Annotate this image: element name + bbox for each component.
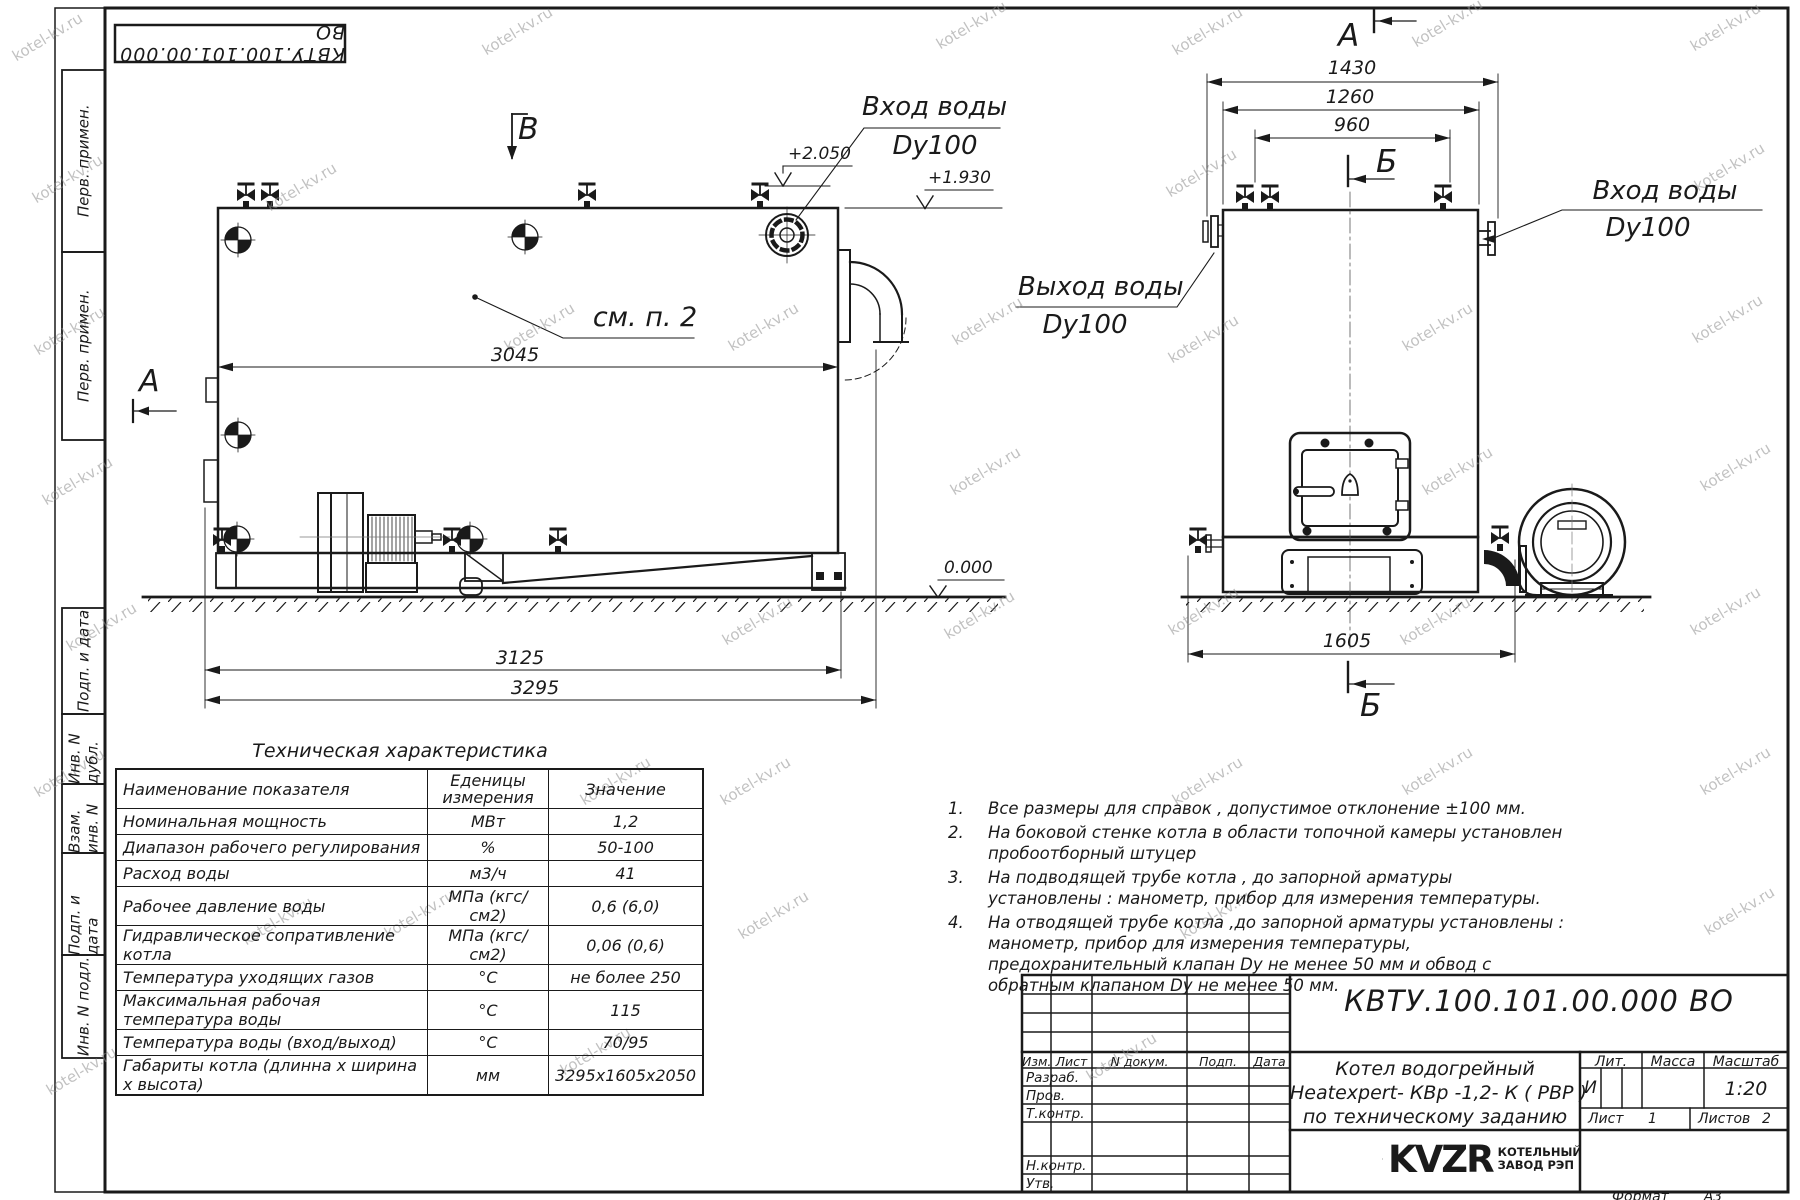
drawing-sheet: kotel-kv.ru kotel-kv.ru kotel-kv.ru kote… [0,0,1800,1200]
cell-name: Диапазон рабочего регулирования [116,835,428,861]
view-label-a-side: А [139,364,160,399]
dim-3295: 3295 [475,677,595,699]
cell-units: % [428,835,549,861]
inlet-callout-dn-front: Dy100 [1588,213,1708,243]
table-row: Диапазон рабочего регулирования%50-100 [116,835,703,861]
see-note-callout: см. п. 2 [580,302,710,333]
section-label-b-bottom: Б [1360,688,1381,724]
inlet-callout-text-front: Вход воды [1565,176,1765,206]
view-label-a-top: А [1338,18,1359,54]
view-label-b: В [518,112,539,147]
note-1: 1. Все размеры для справок , допустимое … [948,798,1568,819]
company-name: КОТЕЛЬНЫЙ ЗАВОД РЭП [1498,1146,1582,1172]
boiler-front-view [1016,10,1762,692]
col-header-units: Еденицы измерения [428,769,549,809]
cell-value: 0,06 (0,6) [549,926,704,965]
sheet-value: 1 [1648,1111,1657,1127]
dim-1430: 1430 [1302,57,1402,79]
format-label: Формат [1612,1189,1669,1200]
sheets-value: 2 [1762,1111,1771,1127]
tech-table-title: Техническая характеристика [115,740,685,762]
row-prov: Пров. [1026,1088,1065,1104]
cell-value: 41 [549,861,704,887]
cell-value: 50-100 [549,835,704,861]
top-stamp-doc-number: КВТУ.100.101.00.000 ВО [115,25,345,62]
lit-label: Лит. [1580,1054,1642,1070]
note-number: 1. [948,798,988,819]
dim-3045: 3045 [455,344,575,366]
col-list: Лист [1051,1054,1092,1069]
table-row: Рабочее давление водыМПа (кгс/см2)0,6 (6… [116,887,703,926]
cell-name: Габариты котла (длинна х ширина х высота… [116,1056,428,1096]
cell-value: 0,6 (6,0) [549,887,704,926]
cell-units: м3/ч [428,861,549,887]
margin-label-podp-data-2: Подп. и дата [62,853,105,955]
table-row: Номинальная мощностьМВт1,2 [116,809,703,835]
cell-units: МВт [428,809,549,835]
tech-table: Наименование показателя Еденицы измерени… [115,768,704,1096]
note-3: 3. На подводящей трубе котла , до запорн… [948,867,1568,909]
notes-list: 1. Все размеры для справок , допустимое … [948,798,1568,999]
cell-units: мм [428,1056,549,1096]
table-row: Гидравлическое сопративление котлаМПа (к… [116,926,703,965]
format-note: Формат А3 [1612,1189,1722,1200]
sheets-label: Листов [1698,1111,1750,1127]
row-nkontr: Н.контр. [1026,1158,1086,1174]
cell-units: °С [428,991,549,1030]
cell-units: МПа (кгс/см2) [428,887,549,926]
dim-3125: 3125 [460,647,580,669]
company-name-line2: ЗАВОД РЭП [1498,1159,1582,1172]
company-logo-block: KVZR КОТЕЛЬНЫЙ ЗАВОД РЭП [1382,1133,1582,1185]
cell-units: МПа (кгс/см2) [428,926,549,965]
product-name-line2: Heatexpert- КВр -1,2- К ( РВР ) [1290,1082,1580,1104]
margin-label-podp-data-1: Подп. и дата [62,608,105,714]
table-row: Габариты котла (длинна х ширина х высота… [116,1056,703,1096]
cell-name: Рабочее давление воды [116,887,428,926]
cell-name: Расход воды [116,861,428,887]
col-header-name: Наименование показателя [116,769,428,809]
scale-label: Масштаб [1704,1054,1788,1070]
table-header-row: Наименование показателя Еденицы измерени… [116,769,703,809]
row-utv: Утв. [1026,1176,1054,1192]
col-ndokum: N докум. [1092,1054,1187,1069]
cell-name: Максимальная рабочая температура воды [116,991,428,1030]
table-row: Максимальная рабочая температура воды°С1… [116,991,703,1030]
row-razrab: Разраб. [1026,1070,1079,1086]
col-podp: Подп. [1187,1054,1249,1069]
elevation-zero: 0.000 [944,558,993,578]
cell-value: 70/95 [549,1030,704,1056]
table-row: Температура уходящих газов°Сне более 250 [116,965,703,991]
margin-label-perv-primen-1: Перв. примен. [62,70,105,252]
row-tkontr: Т.контр. [1026,1106,1085,1122]
mass-label: Масса [1642,1054,1704,1070]
cell-value: 115 [549,991,704,1030]
dim-1605: 1605 [1292,630,1402,652]
cell-name: Температура воды (вход/выход) [116,1030,428,1056]
table-row: Расход водым3/ч41 [116,861,703,887]
cell-units: °С [428,1030,549,1056]
cell-units: °С [428,965,549,991]
doc-number: КВТУ.100.101.00.000 ВО [1290,984,1788,1018]
col-izm: Изм. [1022,1054,1051,1069]
note-2: 2. На боковой стенке котла в области топ… [948,822,1568,864]
company-logo-text: KVZR [1388,1138,1493,1181]
cell-name: Номинальная мощность [116,809,428,835]
lit-value: И [1580,1078,1601,1098]
boiler-side-view [133,114,1005,708]
outlet-elbow [838,250,908,380]
cell-value: не более 250 [549,965,704,991]
note-number: 2. [948,822,988,864]
note-number: 4. [948,912,988,996]
col-header-value: Значение [549,769,704,809]
elevation-mid: +1.930 [928,168,991,188]
outlet-callout-text: Выход воды [1018,272,1180,302]
note-text: На боковой стенке котла в области топочн… [988,822,1568,864]
section-label-b-top: Б [1376,144,1397,180]
cell-name: Температура уходящих газов [116,965,428,991]
note-text: На подводящей трубе котла , до запорной … [988,867,1568,909]
margin-label-inv-dubl: Инв. N дубл. [62,714,105,784]
note-text: Все размеры для справок , допустимое отк… [988,798,1526,819]
inlet-callout-text: Вход воды [862,92,1007,122]
margin-label-inv-podl: Инв. N подл. [62,955,105,1058]
elevation-top: +2.050 [788,144,851,164]
cell-name: Гидравлическое сопративление котла [116,926,428,965]
scale-value: 1:20 [1704,1078,1788,1100]
inlet-callout-dn: Dy100 [885,131,985,161]
product-name-line1: Котел водогрейный [1290,1058,1580,1080]
cell-value: 1,2 [549,809,704,835]
margin-label-vzam-inv: Взам. инв. N [62,784,105,853]
dim-960: 960 [1312,114,1392,136]
outlet-callout-dn: Dy100 [1030,310,1140,340]
inlet-flange [759,207,815,263]
note-number: 3. [948,867,988,909]
margin-label-perv-primen-2: Перв. примен. [62,252,105,440]
table-row: Температура воды (вход/выход)°С70/95 [116,1030,703,1056]
product-name-line3: по техническому заданию [1290,1106,1580,1128]
fan-blower [1519,484,1625,600]
pump-motor [300,493,450,592]
sheet-label: Лист [1588,1111,1623,1127]
cell-value: 3295х1605х2050 [549,1056,704,1096]
col-data: Дата [1249,1054,1290,1069]
format-value: А3 [1704,1189,1722,1200]
dim-1260: 1260 [1300,86,1400,108]
kvzr-logo-icon [1382,1138,1383,1180]
